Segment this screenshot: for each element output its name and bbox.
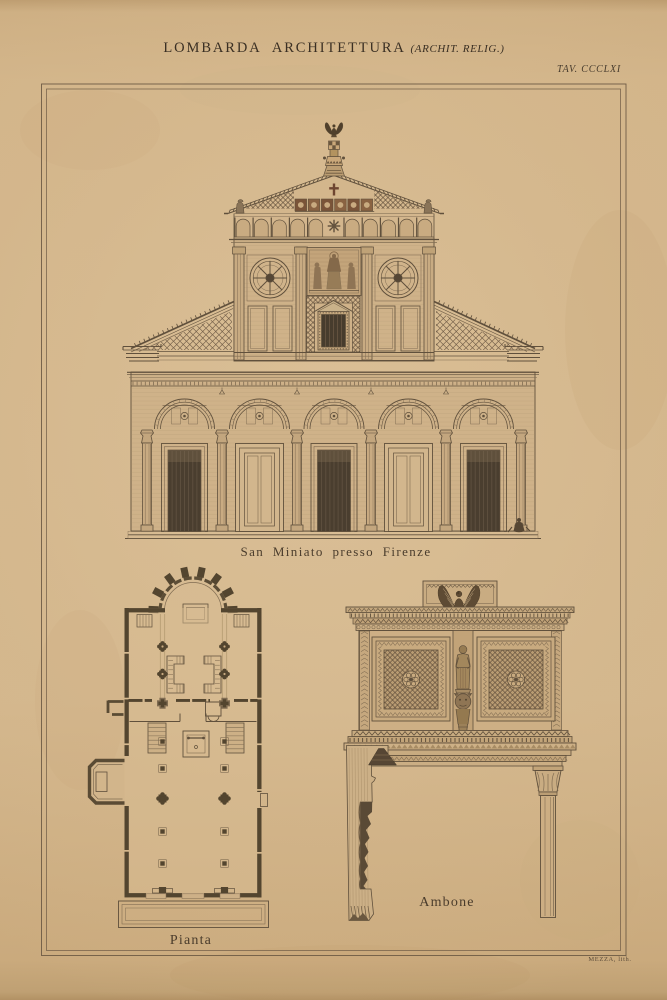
svg-text:MEZZA, lith.: MEZZA, lith. <box>588 956 631 963</box>
svg-text:Ambone: Ambone <box>419 895 474 910</box>
svg-text:LOMBARDA ARCHITETTURA (ARCHIT: LOMBARDA ARCHITETTURA (ARCHIT. RELIG.) <box>163 40 504 56</box>
svg-text:TAV. CCCLXI: TAV. CCCLXI <box>557 64 621 75</box>
svg-text:Pianta: Pianta <box>170 933 212 948</box>
svg-text:San Miniato presso Firenze: San Miniato presso Firenze <box>240 544 431 559</box>
